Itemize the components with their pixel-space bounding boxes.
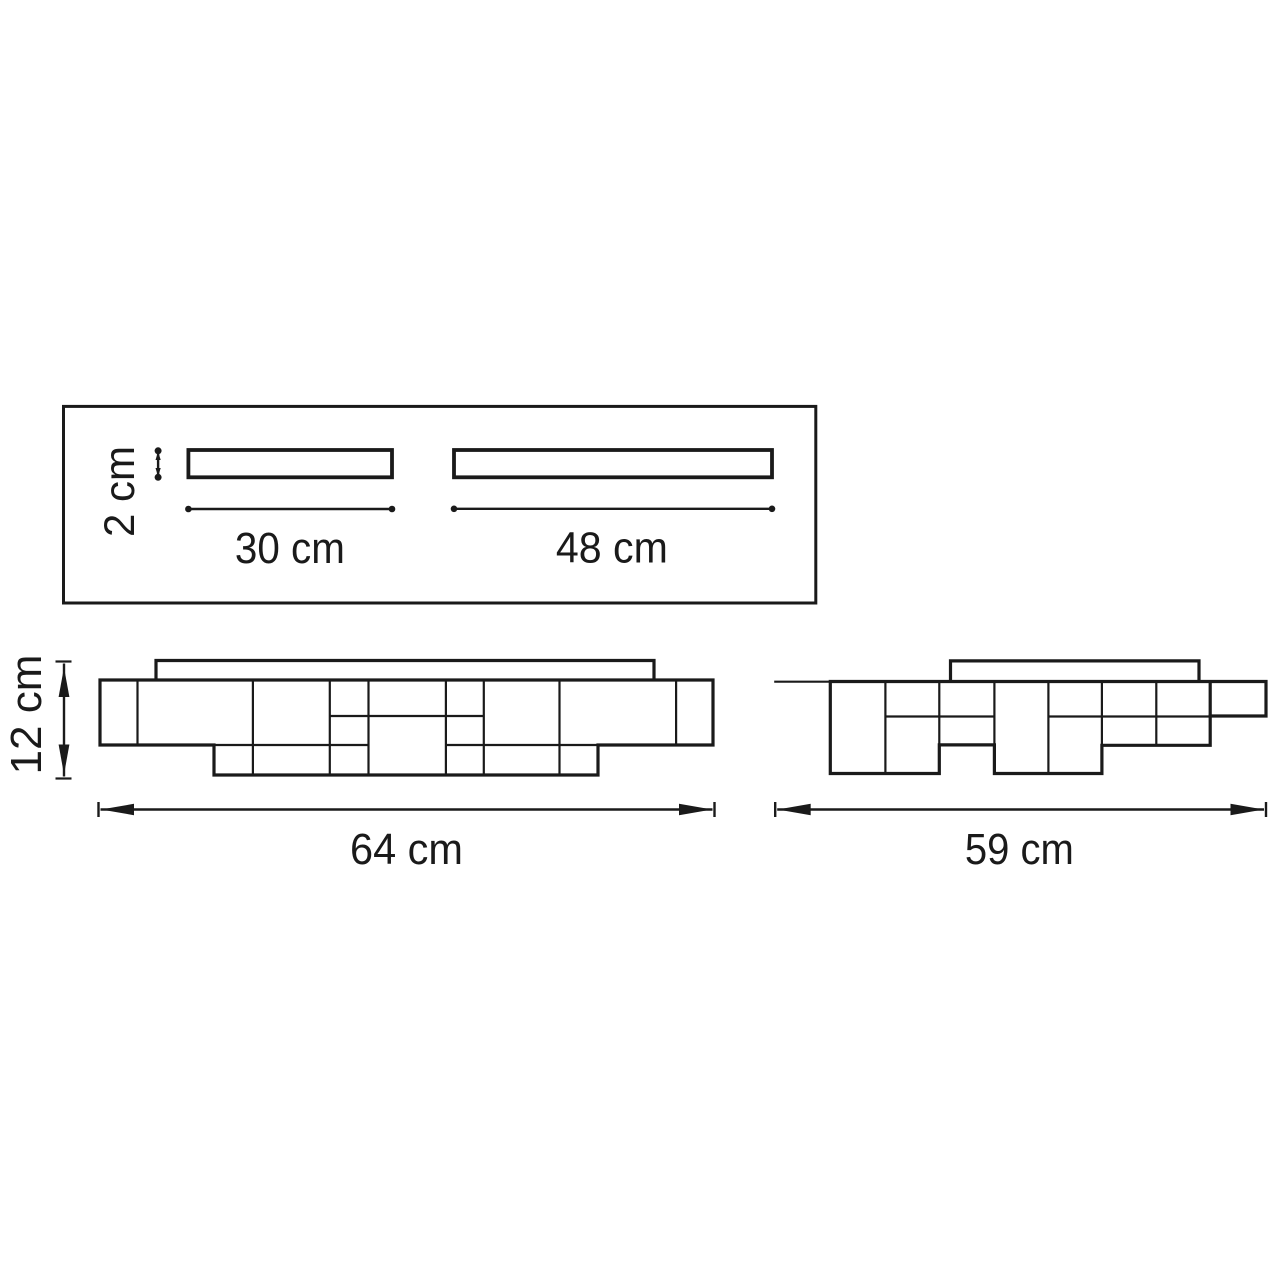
svg-text:48 cm: 48 cm	[556, 524, 668, 573]
svg-text:12 cm: 12 cm	[2, 655, 51, 775]
svg-text:2 cm: 2 cm	[96, 446, 144, 537]
svg-text:59 cm: 59 cm	[965, 825, 1074, 874]
svg-text:64 cm: 64 cm	[350, 825, 463, 874]
svg-text:30 cm: 30 cm	[235, 524, 345, 573]
